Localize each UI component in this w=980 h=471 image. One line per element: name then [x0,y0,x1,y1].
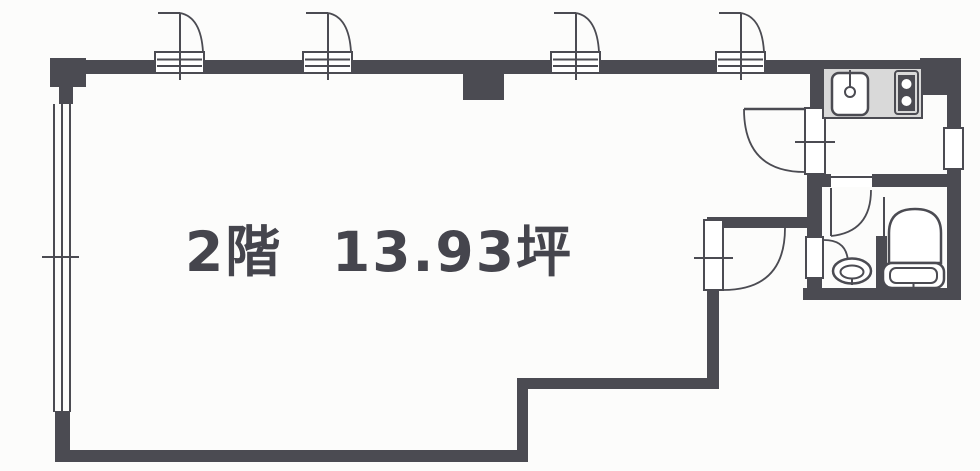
lower-right-wall [707,290,719,389]
toilet-icon [883,209,944,289]
floor-label: 2階 [185,220,282,284]
washroom-top-door [831,174,872,236]
step-horizontal-wall [517,378,719,389]
step-vertical-wall [517,378,528,462]
toilet-bowl [889,209,941,263]
area-label: 13.93坪 [332,220,573,284]
kitchen-left-wall [810,74,822,110]
left-bottom-stub-wall [55,411,70,462]
hallway-doorway-frame [704,220,723,290]
entry-door-1 [155,13,204,80]
right-wall-upper [947,74,961,130]
entry-door-2 [303,13,352,80]
door-swing-arc [741,13,764,52]
structural-pillar [463,62,504,100]
right-window [944,128,963,169]
washroom-doorway-frame [806,237,823,278]
kitchen-door [744,108,835,174]
entry-door-4 [716,13,765,80]
floor-plan: 2階 13.93坪 [0,0,980,471]
door-swing-arc [576,13,599,52]
top-left-corner-block [50,58,86,87]
kitchen-counter [823,68,922,118]
bottom-wall [55,450,528,462]
hallway-door [694,220,785,290]
washroom-left-wall-upper [807,187,822,237]
floor-plan-drawing: 2階 13.93坪 [0,0,980,471]
wash-basin-icon [833,259,871,286]
stove-burner-icon [902,96,912,106]
stove-burner-icon [902,79,912,89]
door-swing-arc [831,190,871,236]
bathroom-bottom-wall [803,288,961,300]
door-swing-arc [744,109,805,172]
kitchen-divider-wall [807,174,961,187]
door-swing-arc [328,13,351,52]
top-left-stub [59,86,73,104]
left-window [42,104,79,412]
door-swing-arc [180,13,203,52]
washroom-top-doorway-gap [831,174,872,187]
entry-door-3 [551,13,600,80]
